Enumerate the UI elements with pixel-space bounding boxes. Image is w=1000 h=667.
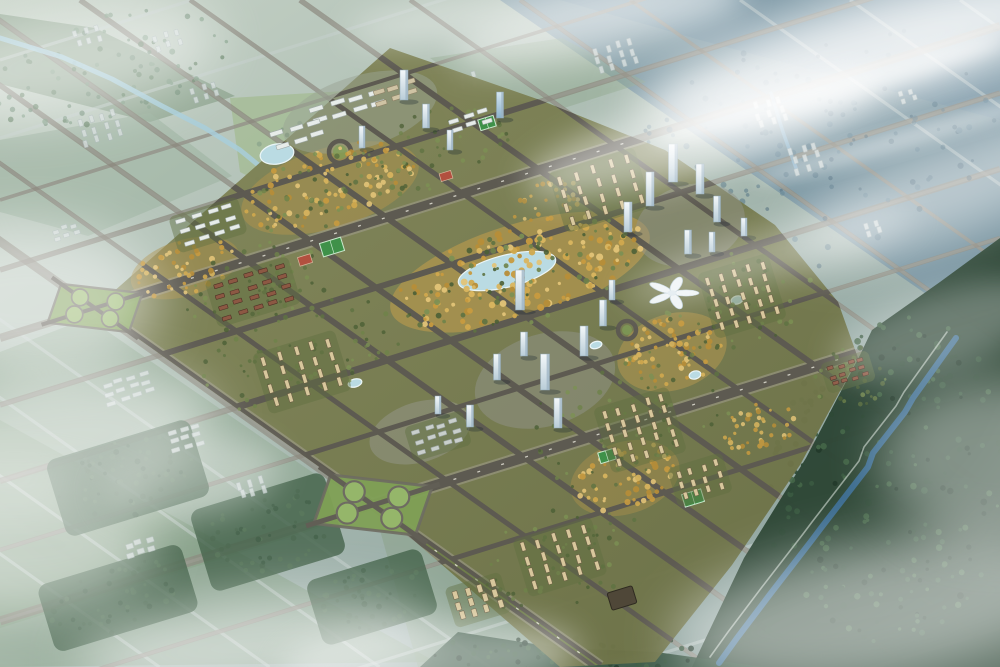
- aerial-city-rendering: [0, 0, 1000, 667]
- scene-canvas: [0, 0, 1000, 667]
- edge-haze-vignette: [0, 0, 1000, 667]
